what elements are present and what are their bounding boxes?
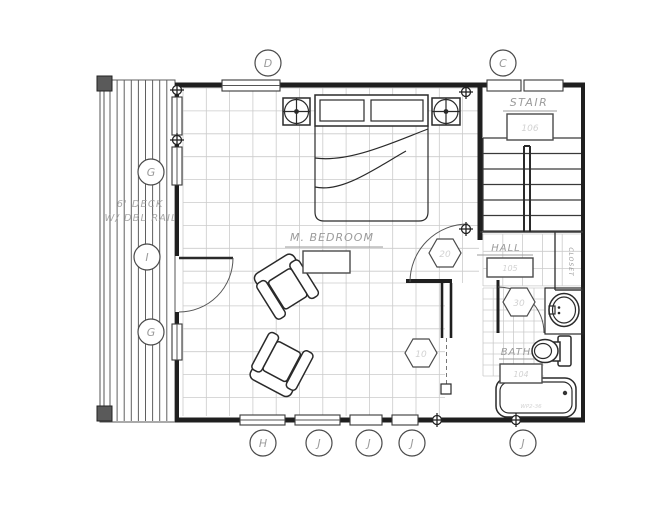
fan-hub — [444, 109, 449, 114]
deck-post-bottom — [97, 406, 112, 421]
toilet — [532, 336, 571, 366]
window-bottom-3 — [350, 415, 382, 425]
room-label-stair: STAIR — [510, 96, 549, 109]
bedroom-tile-grid-lower — [183, 283, 445, 416]
fan-hub — [294, 109, 299, 114]
bathtub-note: WP2-36 — [520, 404, 542, 410]
window-top-3 — [524, 80, 563, 91]
room-label-hall: HALL — [491, 243, 521, 254]
grid-bubble-letter: H — [259, 437, 267, 450]
window-top-2 — [487, 80, 521, 91]
ceiling-fan-left — [283, 98, 310, 125]
wall-end-cap — [441, 384, 451, 394]
keynote-value: 10 — [415, 350, 427, 360]
bed-foot — [315, 212, 428, 221]
room-number-stair: 106 — [521, 124, 538, 134]
room-label-closet: CLOSET — [567, 247, 574, 277]
keynote-value: 30 — [513, 299, 525, 309]
grid-bubble-letter: D — [264, 57, 272, 70]
deck-post-top — [97, 76, 112, 91]
stair-treads — [483, 138, 581, 231]
room-label-bedroom: M. BEDROOM — [290, 231, 374, 244]
floor-plan-page: 6' DECK W/ DBL RAIL — [0, 0, 663, 512]
room-label-bath: BATH — [501, 347, 532, 358]
sink-counter — [545, 288, 583, 334]
deck-label-line2: W/ DBL RAIL — [104, 213, 177, 224]
floor-plan-canvas: 6' DECK W/ DBL RAIL — [0, 0, 663, 512]
grid-bubble-letter: G — [147, 166, 156, 179]
bathtub-icon — [496, 378, 576, 417]
bathtub-drain — [563, 391, 567, 395]
room-number-bath: 104 — [513, 370, 528, 379]
keynote-value: 20 — [439, 250, 451, 260]
armchair-2 — [246, 331, 314, 400]
sink-handle — [558, 306, 561, 309]
grid-bubble-letter: I — [145, 251, 148, 264]
window-bottom-4 — [392, 415, 418, 425]
cross-circle-icon — [430, 413, 444, 427]
room-number-box-bedroom — [303, 251, 350, 273]
sink-icon — [549, 294, 579, 327]
grid-bubble-letter: G — [147, 326, 156, 339]
ceiling-fan-right — [432, 98, 460, 125]
room-number-hall: 105 — [502, 264, 517, 273]
toilet-icon — [532, 340, 558, 363]
grid-bubble-letter: C — [499, 57, 507, 70]
bathtub: WP2-36 — [496, 378, 576, 417]
deck-label-line1: 6' DECK — [117, 199, 164, 210]
stair — [483, 138, 581, 232]
sink-handle — [558, 312, 561, 315]
